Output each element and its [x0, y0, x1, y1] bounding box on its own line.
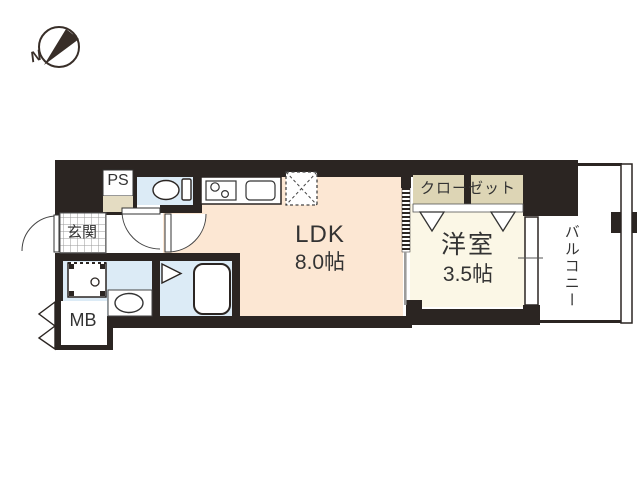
- room-label-closet: クローゼット: [411, 181, 525, 197]
- bathtub-icon: [194, 264, 230, 314]
- room-label-balcony: バルコニー: [563, 210, 579, 322]
- room-label-meter-box: MB: [57, 311, 109, 330]
- washing-machine-icon: [68, 263, 106, 297]
- sliding-door-icon: [402, 188, 410, 305]
- room-size-western-room: 3.5帖: [416, 264, 520, 286]
- room-size-ldk: 8.0帖: [268, 252, 372, 274]
- entrance-door-swing-icon: [22, 215, 59, 252]
- room-label-genkan: 玄関: [58, 225, 106, 241]
- kitchen-sink-icon: [246, 181, 275, 200]
- floorplan-canvas: N PS 玄関 LDK 8.0帖 クローゼット 洋室 3.5帖 バルコニー MB: [0, 0, 640, 480]
- room-label-ps: PS: [101, 173, 135, 190]
- kitchen-stove-icon: [206, 181, 236, 200]
- room-label-western-room: 洋室: [416, 232, 520, 258]
- refrigerator-space-icon: [286, 172, 317, 205]
- toilet-icon: [153, 179, 191, 200]
- wash-basin-icon: [108, 290, 152, 316]
- room-label-ldk: LDK: [268, 222, 372, 247]
- toilet-door-swing-icon: [122, 208, 160, 249]
